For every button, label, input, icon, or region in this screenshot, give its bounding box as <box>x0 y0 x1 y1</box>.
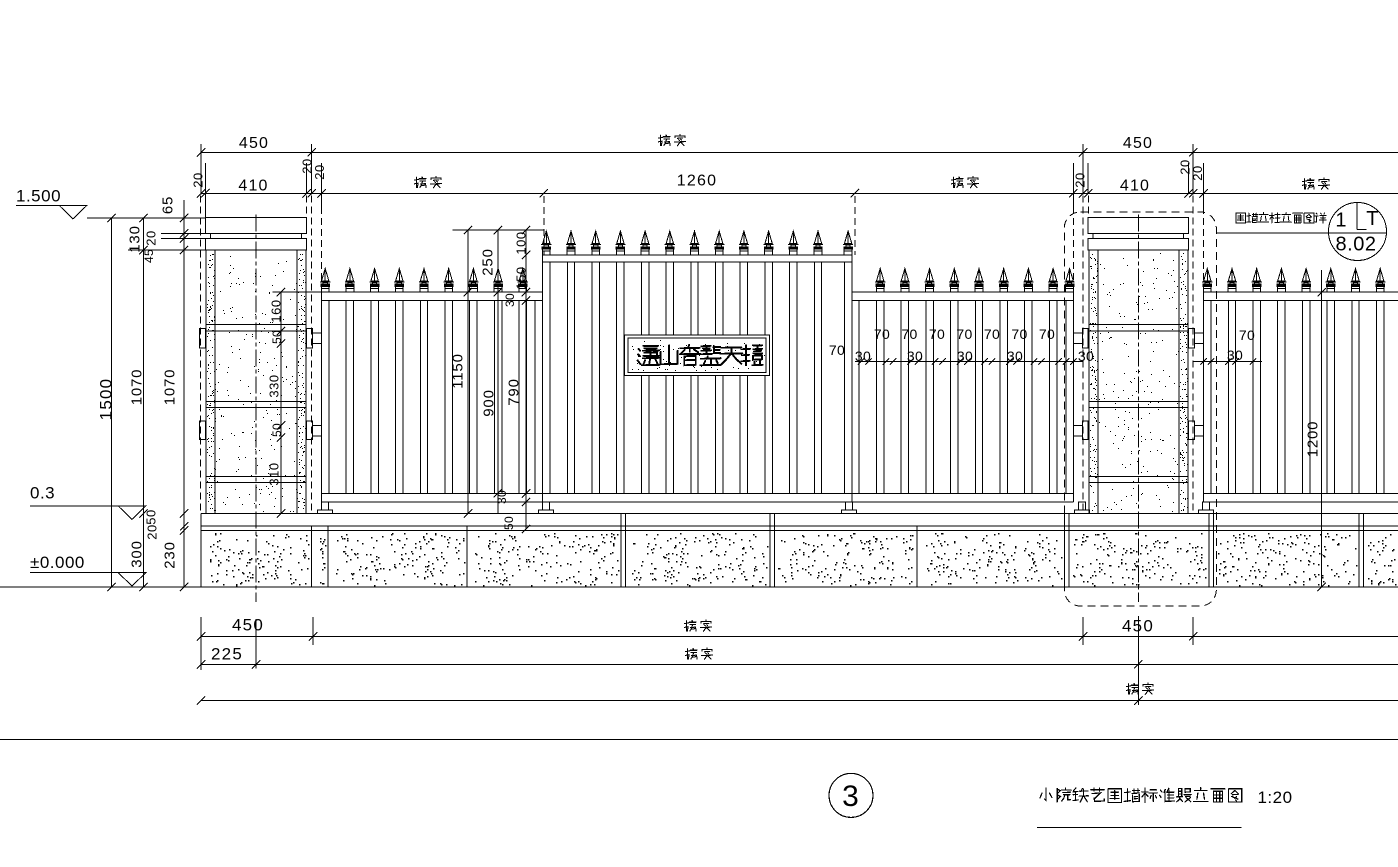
svg-text:70: 70 <box>1011 326 1027 342</box>
svg-text:50: 50 <box>144 509 159 524</box>
svg-text:310: 310 <box>267 462 282 485</box>
svg-text:900: 900 <box>481 389 498 416</box>
svg-text:410: 410 <box>1120 178 1150 195</box>
svg-text:30: 30 <box>1227 347 1243 363</box>
svg-text:70: 70 <box>874 326 890 342</box>
svg-text:230: 230 <box>162 541 179 568</box>
svg-text:30: 30 <box>957 348 973 364</box>
svg-text:1:20: 1:20 <box>1257 788 1292 807</box>
svg-text:30: 30 <box>907 348 923 364</box>
svg-text:70: 70 <box>829 342 845 358</box>
svg-text:20: 20 <box>145 524 160 539</box>
svg-text:70: 70 <box>1039 326 1055 342</box>
svg-text:70: 70 <box>901 326 917 342</box>
svg-text:1070: 1070 <box>162 369 179 406</box>
svg-text:790: 790 <box>506 378 523 405</box>
svg-text:1200: 1200 <box>1305 421 1322 458</box>
svg-text:30: 30 <box>495 490 509 504</box>
svg-text:T: T <box>1366 208 1379 230</box>
svg-text:50: 50 <box>502 516 516 530</box>
svg-text:70: 70 <box>984 326 1000 342</box>
svg-text:1.500: 1.500 <box>16 187 61 206</box>
svg-text:20: 20 <box>1073 172 1088 187</box>
svg-text:0.3: 0.3 <box>30 484 55 503</box>
svg-text:300: 300 <box>129 540 146 567</box>
svg-text:450: 450 <box>232 616 264 635</box>
svg-text:70: 70 <box>929 326 945 342</box>
svg-text:330: 330 <box>267 374 282 397</box>
svg-text:30: 30 <box>1007 348 1023 364</box>
svg-text:450: 450 <box>239 135 269 152</box>
svg-text:30: 30 <box>855 348 871 364</box>
svg-text:1: 1 <box>1335 210 1347 232</box>
svg-text:20: 20 <box>312 164 327 179</box>
svg-text:1260: 1260 <box>677 173 717 190</box>
svg-text:±0.000: ±0.000 <box>30 553 85 572</box>
svg-text:20: 20 <box>1190 165 1205 180</box>
svg-text:45: 45 <box>142 249 156 263</box>
svg-text:250: 250 <box>480 248 497 275</box>
svg-text:150: 150 <box>514 266 529 289</box>
svg-text:450: 450 <box>1122 617 1154 636</box>
svg-text:30: 30 <box>1078 348 1094 364</box>
svg-text:160: 160 <box>269 299 284 322</box>
svg-text:100: 100 <box>514 231 529 254</box>
svg-text:410: 410 <box>238 178 268 195</box>
svg-text:3: 3 <box>842 780 860 813</box>
svg-text:20: 20 <box>144 230 159 245</box>
svg-text:70: 70 <box>1239 327 1255 343</box>
svg-text:30: 30 <box>503 293 517 307</box>
svg-text:65: 65 <box>160 196 177 214</box>
svg-text:225: 225 <box>211 645 243 664</box>
svg-text:50: 50 <box>270 330 284 344</box>
svg-text:450: 450 <box>1123 135 1153 152</box>
svg-text:1150: 1150 <box>450 353 467 388</box>
svg-text:130: 130 <box>127 225 144 252</box>
svg-text:1070: 1070 <box>129 369 146 406</box>
svg-text:20: 20 <box>191 172 206 187</box>
svg-text:50: 50 <box>270 423 284 437</box>
svg-text:8.02: 8.02 <box>1336 234 1377 256</box>
svg-text:70: 70 <box>956 326 972 342</box>
svg-text:1500: 1500 <box>97 378 116 421</box>
